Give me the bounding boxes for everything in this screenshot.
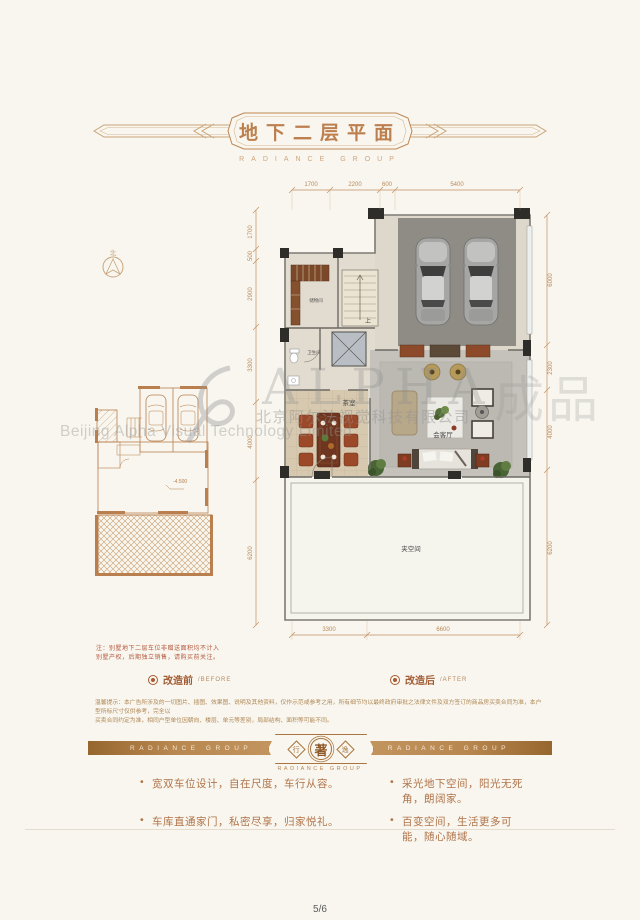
- emblem-center-char: 著: [314, 740, 327, 759]
- before-plan: -4.500: [95, 386, 213, 576]
- legend-before-en: /BEFORE: [198, 677, 231, 683]
- emblem-right-diamond: 逸: [336, 740, 354, 758]
- page-title: 地下二层平面: [0, 118, 640, 145]
- svg-text:2900: 2900: [248, 287, 254, 301]
- disclaimer-line2: 买卖合同约定为准，相同户型单位因朝向、楼层、单元等差别，局部结构、面积等可能不同…: [95, 717, 547, 726]
- selling-points: 宽双车位设计，自在尺度，车行从容。 采光地下空间，阳光无死角，朗阔家。 车库直通…: [140, 776, 532, 844]
- emblem-center-circle: 著: [310, 738, 332, 760]
- svg-text:1700: 1700: [248, 225, 254, 239]
- stairs-up-label: 上: [365, 317, 371, 325]
- legend-after-icon: [390, 675, 400, 685]
- before-level-label: -4.500: [173, 479, 187, 485]
- svg-text:1700: 1700: [304, 182, 318, 188]
- svg-text:6000: 6000: [548, 273, 554, 287]
- compass-north-label: 北: [110, 249, 117, 257]
- mezzanine-label: 夹空间: [401, 544, 421, 553]
- legend-before-icon: [148, 675, 158, 685]
- footer-emblem: 行 著 逸: [268, 734, 374, 764]
- bathroom-label: 卫生间: [307, 349, 321, 356]
- brand-subtitle: RADIANCE GROUP: [0, 156, 640, 163]
- storage-label: 储物间: [309, 297, 323, 304]
- legend-before: 改造前 /BEFORE: [148, 672, 231, 687]
- legend-after: 改造后 /AFTER: [390, 672, 467, 687]
- car-2: [462, 238, 501, 325]
- footer-brand-right: RADIANCE GROUP: [388, 745, 510, 752]
- page-number: 5/6: [0, 904, 640, 915]
- disclaimer-line1: 温馨提示：本广告所涉及的一切图片、插图、效果图、说明及其他资料，仅作示范或参考之…: [95, 699, 547, 717]
- garage: [398, 218, 516, 346]
- emblem-left-diamond: 行: [287, 740, 305, 758]
- selling-point: 采光地下空间，阳光无死角，朗阔家。: [390, 776, 532, 806]
- svg-text:4000: 4000: [548, 425, 554, 439]
- legend-after-zh: 改造后: [405, 672, 435, 687]
- svg-text:4000: 4000: [248, 435, 254, 449]
- emblem-left-char: 行: [293, 744, 300, 754]
- selling-point: 宽双车位设计，自在尺度，车行从容。: [140, 776, 390, 806]
- svg-text:600: 600: [382, 182, 393, 188]
- svg-text:3300: 3300: [322, 627, 336, 633]
- stairs: 上: [342, 270, 378, 326]
- elevator: [332, 332, 366, 366]
- legend-after-en: /AFTER: [440, 677, 467, 683]
- svg-text:3300: 3300: [248, 358, 254, 372]
- car-1: [414, 238, 453, 325]
- footer-brand-left: RADIANCE GROUP: [130, 745, 252, 752]
- footer-brand-sub: RADIANCE GROUP: [0, 766, 640, 772]
- svg-text:2300: 2300: [548, 361, 554, 375]
- svg-text:5400: 5400: [450, 182, 464, 188]
- svg-text:6200: 6200: [248, 546, 254, 560]
- svg-text:2200: 2200: [348, 182, 362, 188]
- emblem-right-char: 逸: [342, 744, 349, 754]
- compass-icon: 北: [103, 249, 123, 277]
- floorplan-canvas: 北 -4.500: [80, 170, 560, 670]
- plan-note: 注：别墅地下二层车位非赠送面积均不计入 别墅产权，后期独立销售，请购买前关注。: [96, 645, 246, 663]
- bottom-divider: [25, 829, 615, 830]
- svg-text:500: 500: [248, 250, 254, 261]
- plan-note-line2: 别墅产权，后期独立销售，请购买前关注。: [96, 654, 246, 663]
- legend-before-zh: 改造前: [163, 672, 193, 687]
- plan-note-line1: 注：别墅地下二层车位非赠送面积均不计入: [96, 645, 246, 654]
- svg-text:6600: 6600: [436, 627, 450, 633]
- tea-room-label: 茶室: [343, 398, 357, 407]
- disclaimer: 温馨提示：本广告所涉及的一切图片、插图、效果图、说明及其他资料，仅作示范或参考之…: [95, 699, 547, 726]
- living-room-label: 会客厅: [433, 430, 453, 439]
- brochure-page: 地下二层平面 RADIANCE GROUP: [0, 0, 640, 920]
- after-plan: 储物间 上 卫生间: [280, 208, 532, 620]
- svg-text:6200: 6200: [548, 541, 554, 555]
